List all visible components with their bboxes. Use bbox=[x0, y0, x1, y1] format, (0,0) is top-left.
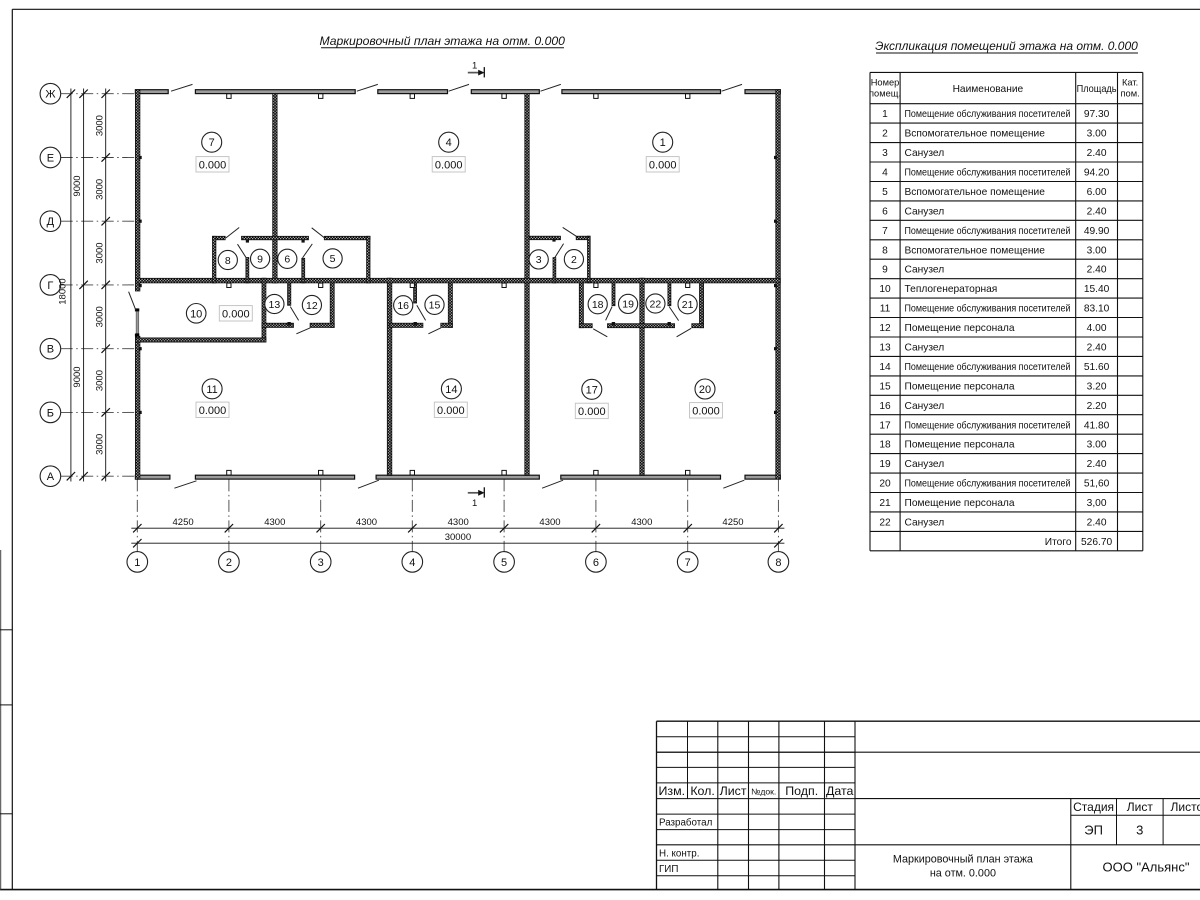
svg-text:Теплогенераторная: Теплогенераторная bbox=[905, 284, 998, 295]
svg-text:3000: 3000 bbox=[94, 370, 105, 391]
svg-text:Вспомогательное помещение: Вспомогательное помещение bbox=[905, 187, 1046, 198]
svg-text:Площадь: Площадь bbox=[1077, 84, 1117, 95]
svg-text:Санузел: Санузел bbox=[905, 148, 945, 159]
svg-text:Кат.: Кат. bbox=[1122, 78, 1138, 88]
svg-text:№док.: №док. bbox=[751, 786, 776, 796]
svg-text:0.000: 0.000 bbox=[435, 159, 463, 171]
svg-text:3000: 3000 bbox=[94, 179, 105, 200]
svg-text:Д: Д bbox=[47, 216, 55, 228]
svg-text:4300: 4300 bbox=[631, 517, 652, 528]
svg-text:4300: 4300 bbox=[539, 517, 560, 528]
svg-text:97.30: 97.30 bbox=[1084, 109, 1110, 120]
svg-text:3000: 3000 bbox=[94, 434, 105, 455]
svg-text:0.000: 0.000 bbox=[199, 159, 227, 171]
svg-text:4250: 4250 bbox=[722, 517, 743, 528]
svg-text:11: 11 bbox=[206, 384, 217, 396]
svg-text:526.70: 526.70 bbox=[1081, 537, 1112, 548]
svg-text:14: 14 bbox=[445, 384, 457, 396]
svg-text:15.40: 15.40 bbox=[1084, 284, 1110, 295]
svg-text:0.000: 0.000 bbox=[437, 405, 465, 417]
svg-text:ГИП: ГИП bbox=[659, 864, 678, 875]
svg-text:Маркировочный план этажа на от: Маркировочный план этажа на отм. 0.000 bbox=[319, 34, 565, 48]
svg-text:2.40: 2.40 bbox=[1087, 459, 1107, 470]
svg-text:В: В bbox=[47, 344, 54, 356]
svg-text:0.000: 0.000 bbox=[199, 405, 227, 417]
svg-text:83.10: 83.10 bbox=[1084, 304, 1110, 315]
svg-text:Лист: Лист bbox=[1127, 800, 1154, 814]
svg-text:Санузел: Санузел bbox=[905, 518, 945, 529]
svg-text:Стадия: Стадия bbox=[1073, 800, 1114, 814]
svg-text:4300: 4300 bbox=[356, 517, 377, 528]
svg-text:5: 5 bbox=[501, 557, 507, 569]
svg-text:17: 17 bbox=[879, 420, 891, 431]
svg-text:51,60: 51,60 bbox=[1084, 479, 1110, 490]
svg-text:8: 8 bbox=[882, 245, 888, 256]
svg-text:Помещение обслуживания посетит: Помещение обслуживания посетителей bbox=[905, 303, 1071, 315]
svg-text:Санузел: Санузел bbox=[905, 401, 945, 412]
svg-text:Наименование: Наименование bbox=[953, 84, 1024, 95]
svg-text:Г: Г bbox=[47, 280, 53, 292]
svg-text:Помещение обслуживания посетит: Помещение обслуживания посетителей bbox=[905, 478, 1071, 490]
svg-text:15: 15 bbox=[879, 381, 891, 392]
svg-text:13: 13 bbox=[269, 299, 281, 311]
svg-text:Лист: Лист bbox=[720, 784, 747, 798]
svg-text:3000: 3000 bbox=[94, 115, 105, 136]
svg-text:3: 3 bbox=[882, 148, 888, 159]
svg-text:9: 9 bbox=[882, 265, 888, 276]
svg-text:94.20: 94.20 bbox=[1084, 168, 1110, 179]
svg-text:6: 6 bbox=[284, 254, 290, 266]
svg-text:Санузел: Санузел bbox=[905, 459, 945, 470]
svg-text:Е: Е bbox=[47, 153, 54, 165]
svg-text:Разработал: Разработал bbox=[659, 818, 713, 829]
svg-text:5: 5 bbox=[330, 253, 336, 265]
svg-text:4300: 4300 bbox=[448, 517, 469, 528]
svg-text:3: 3 bbox=[318, 557, 324, 569]
svg-text:9: 9 bbox=[257, 254, 263, 266]
svg-text:Помещение персонала: Помещение персонала bbox=[905, 381, 1015, 392]
svg-text:8: 8 bbox=[775, 557, 781, 569]
svg-text:2.40: 2.40 bbox=[1087, 206, 1107, 217]
svg-text:Н. контр.: Н. контр. bbox=[659, 848, 699, 859]
svg-text:0.000: 0.000 bbox=[692, 405, 720, 417]
svg-text:41.80: 41.80 bbox=[1084, 420, 1110, 431]
svg-text:2.40: 2.40 bbox=[1087, 148, 1107, 159]
svg-text:9000: 9000 bbox=[72, 175, 83, 196]
svg-text:Маркировочный план этажа: Маркировочный план этажа bbox=[893, 854, 1033, 866]
svg-text:2.40: 2.40 bbox=[1087, 518, 1107, 529]
svg-text:Б: Б bbox=[47, 407, 54, 419]
svg-text:Санузел: Санузел bbox=[905, 265, 945, 276]
svg-text:4: 4 bbox=[409, 557, 415, 569]
svg-text:4.00: 4.00 bbox=[1087, 323, 1107, 334]
svg-text:11: 11 bbox=[880, 304, 891, 315]
svg-text:ООО "Альянс": ООО "Альянс" bbox=[1103, 860, 1190, 875]
svg-text:21: 21 bbox=[879, 498, 891, 509]
svg-text:3.00: 3.00 bbox=[1087, 440, 1107, 451]
svg-text:12: 12 bbox=[879, 323, 891, 334]
svg-text:Номер: Номер bbox=[871, 78, 900, 88]
svg-text:2.20: 2.20 bbox=[1087, 401, 1107, 412]
svg-text:4250: 4250 bbox=[173, 517, 194, 528]
svg-text:ЭП: ЭП bbox=[1084, 823, 1103, 838]
svg-text:Вспомогательное помещение: Вспомогательное помещение bbox=[905, 129, 1046, 140]
svg-text:4300: 4300 bbox=[264, 517, 285, 528]
svg-text:8: 8 bbox=[225, 255, 231, 267]
svg-text:Помещение персонала: Помещение персонала bbox=[905, 323, 1015, 334]
svg-text:16: 16 bbox=[397, 300, 409, 312]
svg-text:4: 4 bbox=[882, 168, 888, 179]
svg-text:15: 15 bbox=[429, 300, 441, 312]
svg-text:22: 22 bbox=[879, 518, 891, 529]
svg-text:1: 1 bbox=[660, 137, 666, 149]
svg-text:21: 21 bbox=[682, 299, 694, 311]
svg-text:на отм. 0.000: на отм. 0.000 bbox=[930, 868, 996, 880]
svg-text:4: 4 bbox=[446, 137, 452, 149]
svg-text:Санузел: Санузел bbox=[905, 206, 945, 217]
svg-text:Помещение обслуживания посетит: Помещение обслуживания посетителей bbox=[905, 225, 1071, 237]
svg-text:17: 17 bbox=[586, 384, 598, 396]
svg-text:6: 6 bbox=[593, 557, 599, 569]
svg-text:Дата: Дата bbox=[826, 784, 854, 798]
svg-text:3.00: 3.00 bbox=[1087, 129, 1107, 140]
svg-text:18000: 18000 bbox=[58, 278, 69, 304]
svg-text:13: 13 bbox=[879, 343, 891, 354]
svg-text:10: 10 bbox=[190, 308, 202, 320]
svg-text:10: 10 bbox=[879, 284, 891, 295]
svg-text:Помещение обслуживания посетит: Помещение обслуживания посетителей bbox=[905, 167, 1071, 179]
svg-text:3,00: 3,00 bbox=[1087, 498, 1107, 509]
svg-text:19: 19 bbox=[622, 299, 634, 311]
svg-text:19: 19 bbox=[879, 459, 891, 470]
svg-text:3000: 3000 bbox=[94, 242, 105, 263]
svg-text:30000: 30000 bbox=[445, 532, 471, 543]
svg-text:6: 6 bbox=[882, 206, 888, 217]
svg-text:Кол.: Кол. bbox=[690, 784, 715, 798]
svg-text:Изм.: Изм. bbox=[659, 784, 686, 798]
svg-text:Помещение обслуживания посетит: Помещение обслуживания посетителей bbox=[905, 108, 1071, 120]
svg-text:3.00: 3.00 bbox=[1087, 245, 1107, 256]
svg-text:Ж: Ж bbox=[45, 89, 55, 101]
svg-text:6.00: 6.00 bbox=[1087, 187, 1107, 198]
svg-text:0.000: 0.000 bbox=[649, 159, 677, 171]
svg-text:7: 7 bbox=[209, 137, 215, 149]
svg-text:помещ.: помещ. bbox=[869, 89, 901, 99]
svg-text:пом.: пом. bbox=[1121, 89, 1140, 99]
svg-text:А: А bbox=[47, 471, 55, 483]
svg-text:1: 1 bbox=[472, 498, 477, 509]
svg-text:3: 3 bbox=[536, 254, 542, 266]
svg-text:Помещение обслуживания посетит: Помещение обслуживания посетителей bbox=[905, 361, 1071, 373]
svg-text:16: 16 bbox=[879, 401, 891, 412]
svg-text:0.000: 0.000 bbox=[222, 308, 250, 320]
svg-text:12: 12 bbox=[306, 300, 318, 312]
svg-text:14: 14 bbox=[879, 362, 891, 373]
svg-text:Санузел: Санузел bbox=[905, 343, 945, 354]
svg-text:18: 18 bbox=[592, 299, 604, 311]
svg-text:22: 22 bbox=[650, 298, 662, 310]
svg-text:1: 1 bbox=[472, 61, 477, 72]
svg-text:7: 7 bbox=[685, 557, 691, 569]
svg-text:18: 18 bbox=[879, 440, 891, 451]
svg-text:49.90: 49.90 bbox=[1084, 226, 1110, 237]
svg-text:3.20: 3.20 bbox=[1087, 381, 1107, 392]
svg-text:20: 20 bbox=[699, 384, 711, 396]
svg-text:3: 3 bbox=[1136, 823, 1143, 838]
svg-text:1: 1 bbox=[882, 109, 888, 120]
svg-text:Помещение персонала: Помещение персонала bbox=[905, 498, 1015, 509]
svg-text:Помещение обслуживания посетит: Помещение обслуживания посетителей bbox=[905, 419, 1071, 431]
svg-text:Итого: Итого bbox=[1045, 537, 1072, 548]
svg-text:Помещение персонала: Помещение персонала bbox=[905, 440, 1015, 451]
svg-text:2: 2 bbox=[571, 254, 577, 266]
svg-text:Подп.: Подп. bbox=[785, 784, 818, 798]
svg-text:Листов: Листов bbox=[1171, 800, 1200, 814]
svg-text:20: 20 bbox=[879, 479, 891, 490]
svg-text:Экспликация помещений этажа на: Экспликация помещений этажа на отм. 0.00… bbox=[875, 39, 1138, 53]
svg-text:2.40: 2.40 bbox=[1087, 265, 1107, 276]
svg-text:5: 5 bbox=[882, 187, 888, 198]
svg-text:2: 2 bbox=[226, 557, 232, 569]
svg-text:7: 7 bbox=[882, 226, 888, 237]
svg-text:2.40: 2.40 bbox=[1087, 343, 1107, 354]
svg-text:51.60: 51.60 bbox=[1084, 362, 1110, 373]
svg-text:Вспомогательное помещение: Вспомогательное помещение bbox=[905, 245, 1046, 256]
svg-text:9000: 9000 bbox=[72, 366, 83, 387]
svg-text:1: 1 bbox=[134, 557, 140, 569]
svg-text:2: 2 bbox=[882, 129, 888, 140]
svg-text:0.000: 0.000 bbox=[578, 406, 606, 418]
svg-text:3000: 3000 bbox=[94, 306, 105, 327]
